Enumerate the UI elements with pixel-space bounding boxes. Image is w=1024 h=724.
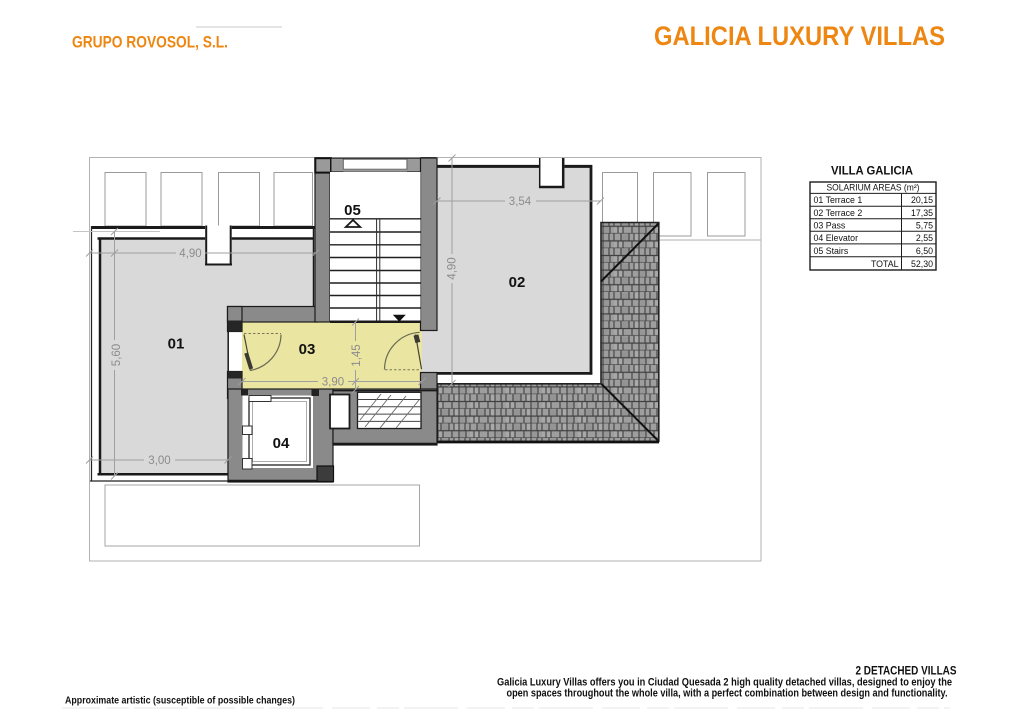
svg-text:2,55: 2,55	[916, 233, 933, 243]
svg-text:02 Terrace 2: 02 Terrace 2	[814, 208, 863, 218]
svg-text:GALICIA LUXURY VILLAS: GALICIA LUXURY VILLAS	[654, 21, 945, 51]
svg-text:4,90: 4,90	[447, 257, 459, 279]
svg-text:Approximate artistic (suscepti: Approximate artistic (susceptible of pos…	[65, 696, 295, 707]
svg-text:04 Elevator: 04 Elevator	[814, 233, 859, 243]
svg-text:TOTAL: TOTAL	[871, 259, 899, 269]
svg-text:5,75: 5,75	[916, 220, 933, 230]
svg-text:GRUPO ROVOSOL, S.L.: GRUPO ROVOSOL, S.L.	[72, 33, 228, 52]
svg-text:03: 03	[299, 341, 316, 358]
svg-text:05 Stairs: 05 Stairs	[814, 246, 849, 256]
svg-text:20,15: 20,15	[911, 195, 933, 205]
svg-text:3,90: 3,90	[322, 377, 344, 389]
svg-text:05: 05	[344, 202, 361, 219]
svg-text:SOLARIUM AREAS (m²): SOLARIUM AREAS (m²)	[827, 183, 920, 193]
svg-text:01: 01	[168, 336, 185, 353]
svg-text:02: 02	[509, 274, 526, 291]
svg-text:03 Pass: 03 Pass	[814, 220, 846, 230]
svg-text:4,90: 4,90	[179, 248, 201, 260]
svg-text:04: 04	[273, 435, 290, 452]
svg-text:52,30: 52,30	[911, 259, 933, 269]
svg-text:01 Terrace 1: 01 Terrace 1	[814, 195, 863, 205]
svg-text:3,54: 3,54	[509, 196, 532, 208]
svg-text:3,00: 3,00	[148, 455, 170, 467]
svg-text:6,50: 6,50	[916, 246, 933, 256]
svg-text:5,60: 5,60	[111, 344, 123, 366]
svg-text:VILLA GALICIA: VILLA GALICIA	[831, 166, 913, 178]
svg-text:1,45: 1,45	[351, 344, 363, 366]
svg-text:open spaces throughout the who: open spaces throughout the whole villa, …	[507, 688, 948, 700]
svg-text:17,35: 17,35	[911, 208, 933, 218]
